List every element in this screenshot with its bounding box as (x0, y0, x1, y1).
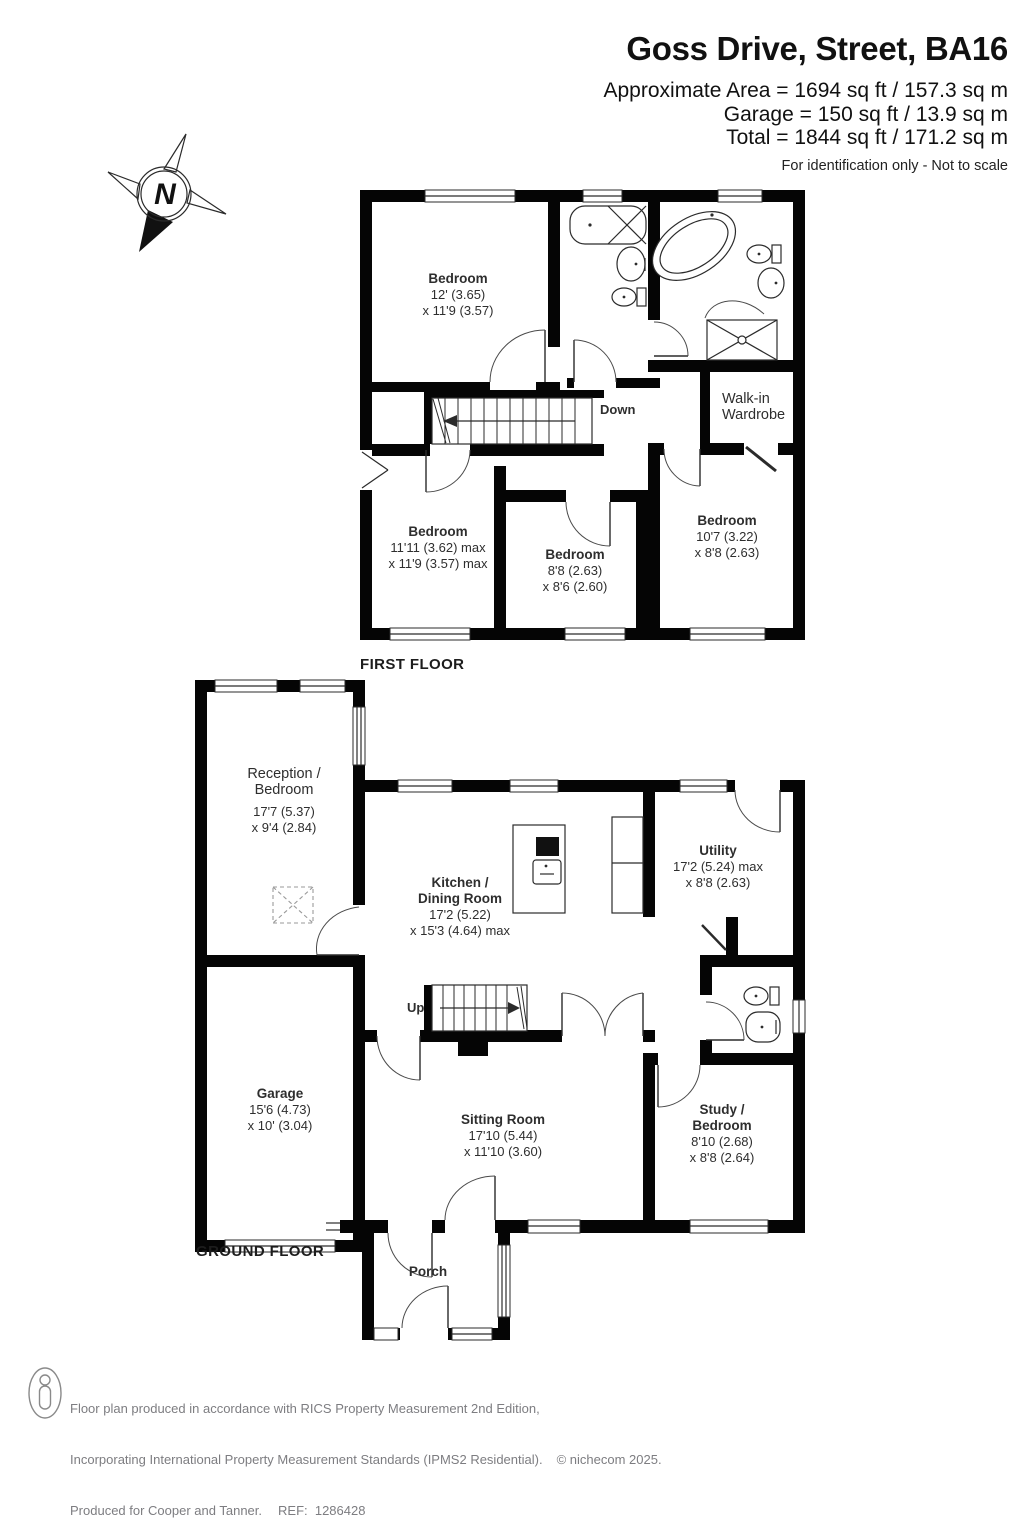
reference-number: REF: 1286428 (278, 1503, 365, 1518)
nichecom-logo-icon (26, 1366, 64, 1420)
stairs-down-icon (432, 398, 592, 444)
ensuite-fixtures (640, 197, 784, 360)
room-label-porch: Porch (409, 1264, 447, 1280)
oven-icon (533, 860, 561, 884)
footer-line-1: Floor plan produced in accordance with R… (70, 1400, 662, 1417)
rooflight-dashed-icon (273, 887, 313, 923)
bath-icon (570, 206, 646, 244)
room-label-reception: Reception / Bedroom 17'7 (5.37) x 9'4 (2… (247, 766, 320, 836)
room-label-sitting-room: Sitting Room 17'10 (5.44) x 11'10 (3.60) (461, 1112, 545, 1160)
room-label-study: Study / Bedroom 8'10 (2.68) x 8'8 (2.64) (690, 1102, 755, 1166)
room-label-bedroom-front: Bedroom 12' (3.65) x 11'9 (3.57) (423, 271, 494, 319)
approximate-area-line: Approximate Area = 1694 sq ft / 157.3 sq… (604, 79, 1009, 103)
footer-disclaimer: Floor plan produced in accordance with R… (70, 1366, 662, 1536)
hob-icon (536, 837, 559, 856)
wc-fixtures (744, 987, 780, 1042)
garage-area-line: Garage = 150 sq ft / 13.9 sq m (604, 103, 1009, 127)
sink-icon (617, 247, 645, 281)
sink-icon (758, 268, 784, 298)
total-area-line: Total = 1844 sq ft / 171.2 sq m (604, 126, 1009, 150)
floorplan-page: { "header": { "title": "Goss Drive, Stre… (0, 0, 1024, 1448)
page-title: Goss Drive, Street, BA16 (604, 30, 1009, 68)
footer-line-3: Produced for Cooper and Tanner.REF: 1286… (70, 1502, 662, 1519)
stairs-direction-down: Down (600, 402, 635, 417)
room-label-bedroom-left: Bedroom 11'11 (3.62) max x 11'9 (3.57) m… (388, 524, 487, 572)
shower-door-arc (705, 301, 764, 318)
room-label-garage: Garage 15'6 (4.73) x 10' (3.04) (248, 1086, 313, 1134)
scale-disclaimer: For identification only - Not to scale (604, 158, 1009, 174)
kitchen-fixtures (513, 817, 643, 913)
room-label-kitchen: Kitchen / Dining Room 17'2 (5.22) x 15'3… (410, 875, 510, 939)
floor-label-ground: GROUND FLOOR (196, 1243, 324, 1260)
floor-label-first: FIRST FLOOR (360, 656, 464, 673)
room-label-bedroom-right: Bedroom 10'7 (3.22) x 8'8 (2.63) (695, 513, 760, 561)
area-summary: Approximate Area = 1694 sq ft / 157.3 sq… (604, 79, 1009, 150)
stairs-up-icon (424, 985, 527, 1032)
north-label: N (154, 178, 176, 212)
header-block: Goss Drive, Street, BA16 Approximate Are… (604, 30, 1009, 174)
room-label-wardrobe: Walk-in Wardrobe (722, 391, 785, 423)
footer-line-2: Incorporating International Property Mea… (70, 1451, 662, 1468)
copyright: © nichecom 2025. (557, 1452, 662, 1467)
stairs-direction-up: Up (407, 1000, 424, 1015)
room-label-bedroom-middle: Bedroom 8'8 (2.63) x 8'6 (2.60) (543, 547, 608, 595)
kitchen-counter (612, 817, 643, 913)
bathroom-fixtures (570, 206, 646, 306)
room-label-utility: Utility 17'2 (5.24) max x 8'8 (2.63) (673, 843, 763, 891)
